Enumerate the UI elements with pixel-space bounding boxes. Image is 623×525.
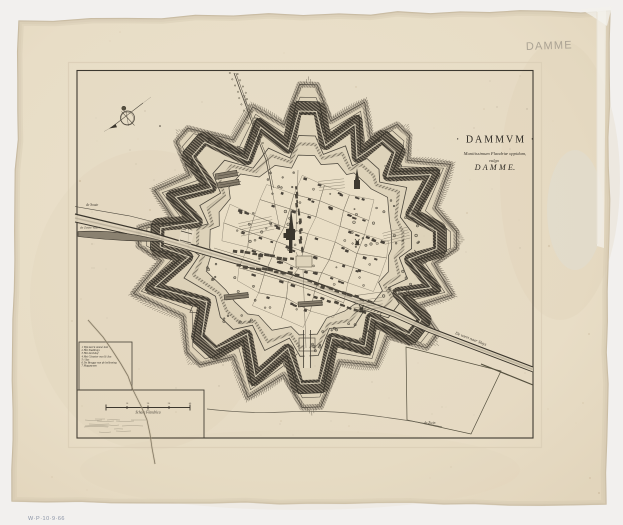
svg-text:W·P·10·9·66: W·P·10·9·66 (28, 516, 65, 522)
svg-text:DAMME: DAMME (526, 39, 573, 53)
svg-text:de Soute: de Soute (86, 203, 99, 207)
svg-text:Schala Flandrica: Schala Flandrica (135, 411, 160, 415)
svg-text:D A M M E.: D A M M E. (474, 163, 516, 172)
svg-text:· DAMMVM ·: · DAMMVM · (456, 135, 536, 146)
svg-text:de Zwin: de Zwin (424, 421, 436, 425)
svg-text:de Zoute vaert: de Zoute vaert (80, 226, 101, 230)
svg-text:7 Magasynen: 7 Magasynen (82, 364, 98, 368)
